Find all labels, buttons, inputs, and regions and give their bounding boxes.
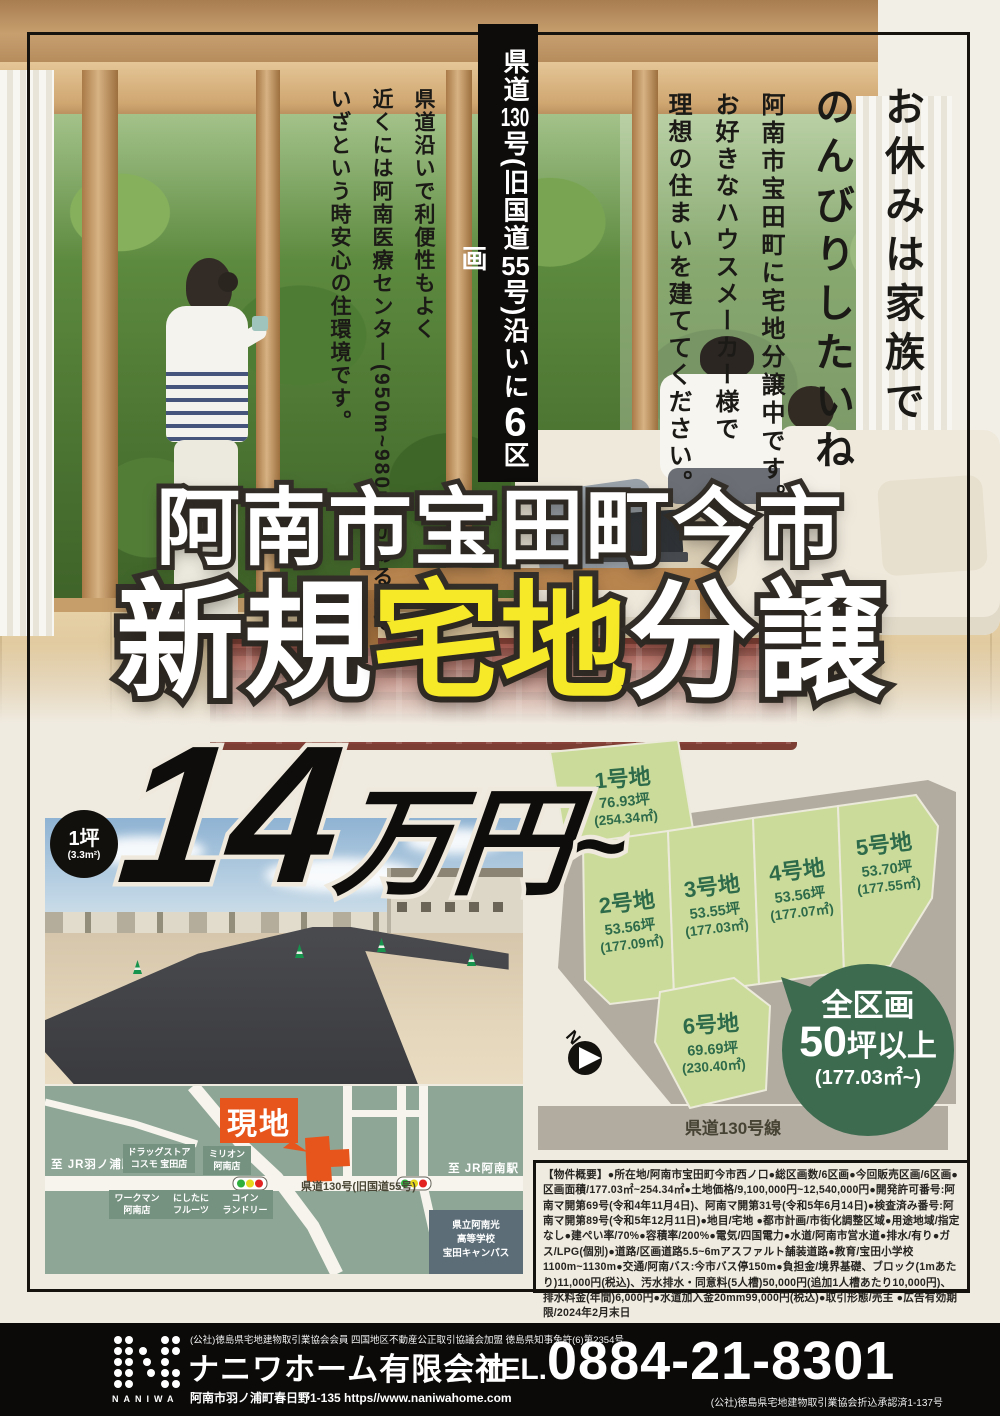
traffic-light-icon xyxy=(233,1177,267,1190)
location-title: 阿南市宝田町今市 xyxy=(0,486,1000,570)
hero-woman-stripes xyxy=(166,363,248,442)
main-title-pre: 新規 xyxy=(116,571,372,714)
plan-road-label: 県道130号線 xyxy=(685,1118,781,1138)
map-poi-drugstore: ドラッグストア コスモ 宝田店 xyxy=(123,1144,195,1173)
main-title: 新規宅地分譲 xyxy=(0,578,1000,709)
map-road-main xyxy=(45,1176,523,1191)
map-road-label: 県道130号(旧国道55号) xyxy=(301,1178,416,1194)
property-outline-box: 【物件概要】●所在地/阿南市宝田町今市西ノ口●総区画数/6区画●今回販売区画/6… xyxy=(533,1160,970,1293)
map-road-connector xyxy=(343,1110,428,1117)
map-poi-fruits: にしたに フルーツ xyxy=(165,1190,217,1219)
price-unit-sub: (3.3m²) xyxy=(50,850,118,861)
price-unit: 1坪 xyxy=(50,828,118,850)
map-road-vertical xyxy=(419,1086,428,1178)
footer-approval: (公社)徳島県宅地建物取引業協会折込承認済1-137号 xyxy=(711,1394,943,1409)
price-unit-circle: 1坪 (3.3m²) xyxy=(50,810,118,878)
map-poi-workman: ワークマン 阿南店 xyxy=(109,1190,165,1219)
sub-line: 阿南市宝田町に宅地分譲中です。 xyxy=(753,92,788,512)
price-block: 1坪 (3.3m²) 14 万円 ~ xyxy=(44,722,626,894)
map-station-left: 至 JR羽ノ浦駅 xyxy=(51,1156,134,1172)
maker-line-2: 理想の住まいを建ててください。 xyxy=(660,92,695,497)
road-banner-vertical: 県道130号(旧国道55号)沿いに6区画 xyxy=(478,24,538,482)
maker-copy-vertical: お好きなハウスメーカー様で 理想の住まいを建ててください。 xyxy=(648,92,742,497)
price-amount: 14 xyxy=(114,737,348,894)
badge-line3: (177.03㎡~) xyxy=(815,1065,921,1089)
flyer-page: お休みは家族で のんびりしたいね 阿南市宝田町に宅地分譲中です。 お好きなハウス… xyxy=(0,0,1000,1416)
hero-woman-torso xyxy=(166,306,248,442)
maker-line-1: お好きなハウスメーカー様で xyxy=(707,92,742,497)
map-site-label: 現地 xyxy=(220,1098,298,1143)
price-from-tilde: ~ xyxy=(568,805,630,888)
main-title-post: 分譲 xyxy=(628,571,884,714)
map-poi-million: ミリオン 阿南店 xyxy=(203,1146,251,1175)
phone-number-block: TEL. 0884-21-8301 xyxy=(482,1330,895,1392)
naniwa-logo-icon xyxy=(112,1334,192,1390)
company-name: ナニワホーム有限会社 xyxy=(188,1344,507,1389)
svg-text:6号地: 6号地 xyxy=(682,1010,740,1039)
company-address: 阿南市羽ノ浦町春日野1-135 https//www.naniwahome.co… xyxy=(190,1389,512,1406)
svg-text:69.69坪: 69.69坪 xyxy=(687,1039,739,1060)
map-road-vertical xyxy=(397,1086,406,1178)
map-poi-laundry: コイン ランドリー xyxy=(217,1190,273,1219)
naniwa-logo-text: NANIWA xyxy=(112,1394,179,1404)
catch-line-2: のんびりしたいね xyxy=(802,86,860,478)
main-title-highlight: 宅地 xyxy=(372,571,628,714)
sub-copy-vertical: 阿南市宝田町に宅地分譲中です。 xyxy=(741,92,788,512)
map-school-label: 県立阿南光 高等学校 宝田キャンパス xyxy=(429,1210,523,1274)
access-map: 現地 至 JR羽ノ浦駅 至 JR阿南駅 県道130号(旧国道55号) ドラッグス… xyxy=(45,1086,523,1274)
cup-icon xyxy=(252,316,268,331)
tel-label: TEL. xyxy=(482,1353,547,1387)
map-station-right: 至 JR阿南駅 xyxy=(448,1160,519,1176)
catch-copy-vertical: お休みは家族で のんびりしたいね xyxy=(790,86,930,478)
tel-number: 0884-21-8301 xyxy=(547,1330,895,1392)
lot-6-label: 6号地 69.69坪 (230.40㎡) xyxy=(678,1010,746,1076)
price-currency: 万円 xyxy=(331,794,578,894)
hero-woman-bun xyxy=(218,272,238,292)
catch-line-1: お休みは家族で xyxy=(872,86,930,478)
